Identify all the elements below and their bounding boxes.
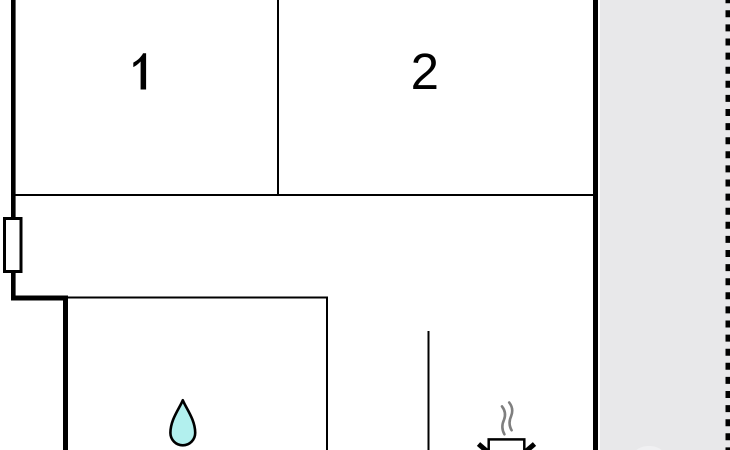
svg-text:2: 2 xyxy=(411,43,439,100)
